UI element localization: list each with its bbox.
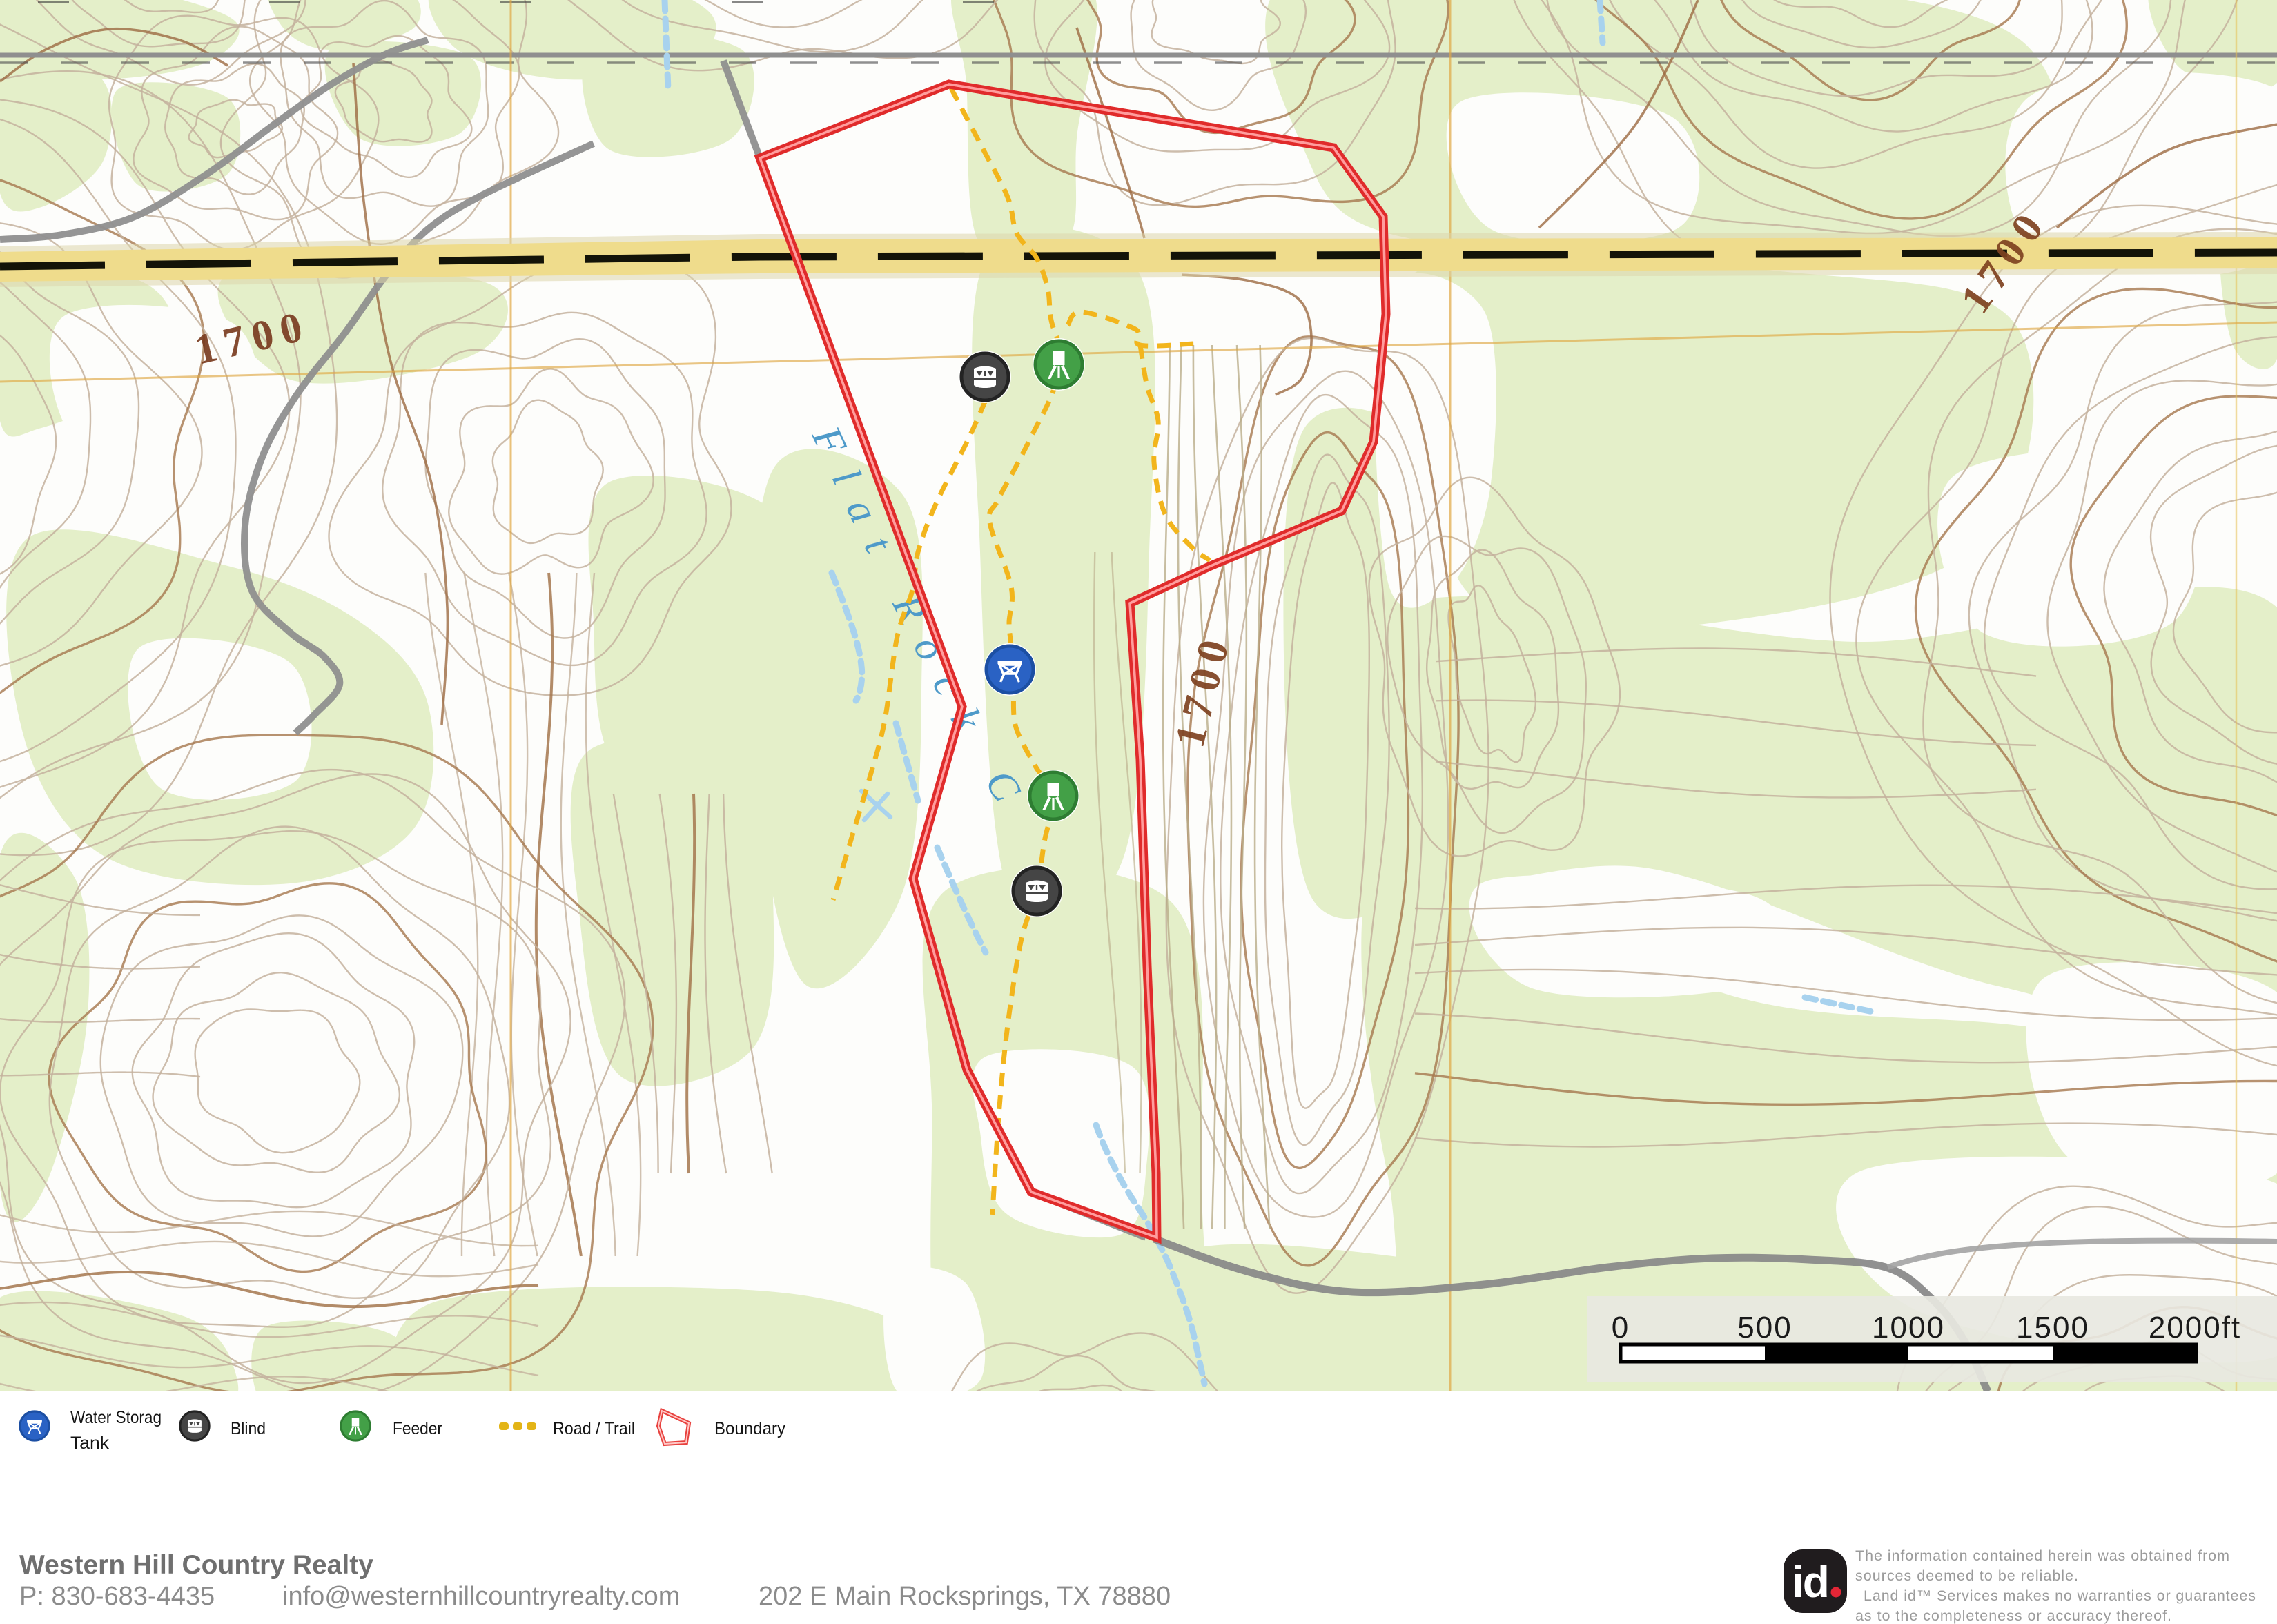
svg-text:The information contained here: The information contained herein was obt… <box>1855 1547 2229 1564</box>
svg-text:P: 830-683-4435: P: 830-683-4435 <box>19 1582 215 1611</box>
svg-text:Blind: Blind <box>231 1419 266 1438</box>
svg-text:1500: 1500 <box>2016 1311 2089 1344</box>
svg-text:Water Storag: Water Storag <box>70 1408 162 1427</box>
svg-text:Boundary: Boundary <box>714 1419 785 1438</box>
svg-text:as to the completeness or accu: as to the completeness or accuracy there… <box>1855 1607 2171 1624</box>
svg-text:Road / Trail: Road / Trail <box>553 1419 635 1438</box>
svg-text:1000: 1000 <box>1872 1311 1945 1344</box>
svg-text:id: id <box>1792 1557 1828 1607</box>
svg-text:Western Hill Country Realty: Western Hill Country Realty <box>19 1550 373 1580</box>
svg-text:Feeder: Feeder <box>393 1419 442 1438</box>
svg-text:info@westernhillcountryrealty.: info@westernhillcountryrealty.com <box>282 1582 680 1611</box>
svg-text:202 E Main Rocksprings, TX 788: 202 E Main Rocksprings, TX 78880 <box>759 1582 1171 1611</box>
svg-text:500: 500 <box>1737 1311 1792 1344</box>
svg-text:Land id™ Services makes no wa: Land id™ Services makes no warranties or… <box>1864 1587 2256 1604</box>
svg-text:0: 0 <box>1612 1311 1630 1344</box>
svg-text:Tank: Tank <box>70 1434 110 1453</box>
svg-text:sources deemed to be reliable.: sources deemed to be reliable. <box>1855 1567 2078 1584</box>
svg-text:2000ft: 2000ft <box>2149 1311 2241 1344</box>
